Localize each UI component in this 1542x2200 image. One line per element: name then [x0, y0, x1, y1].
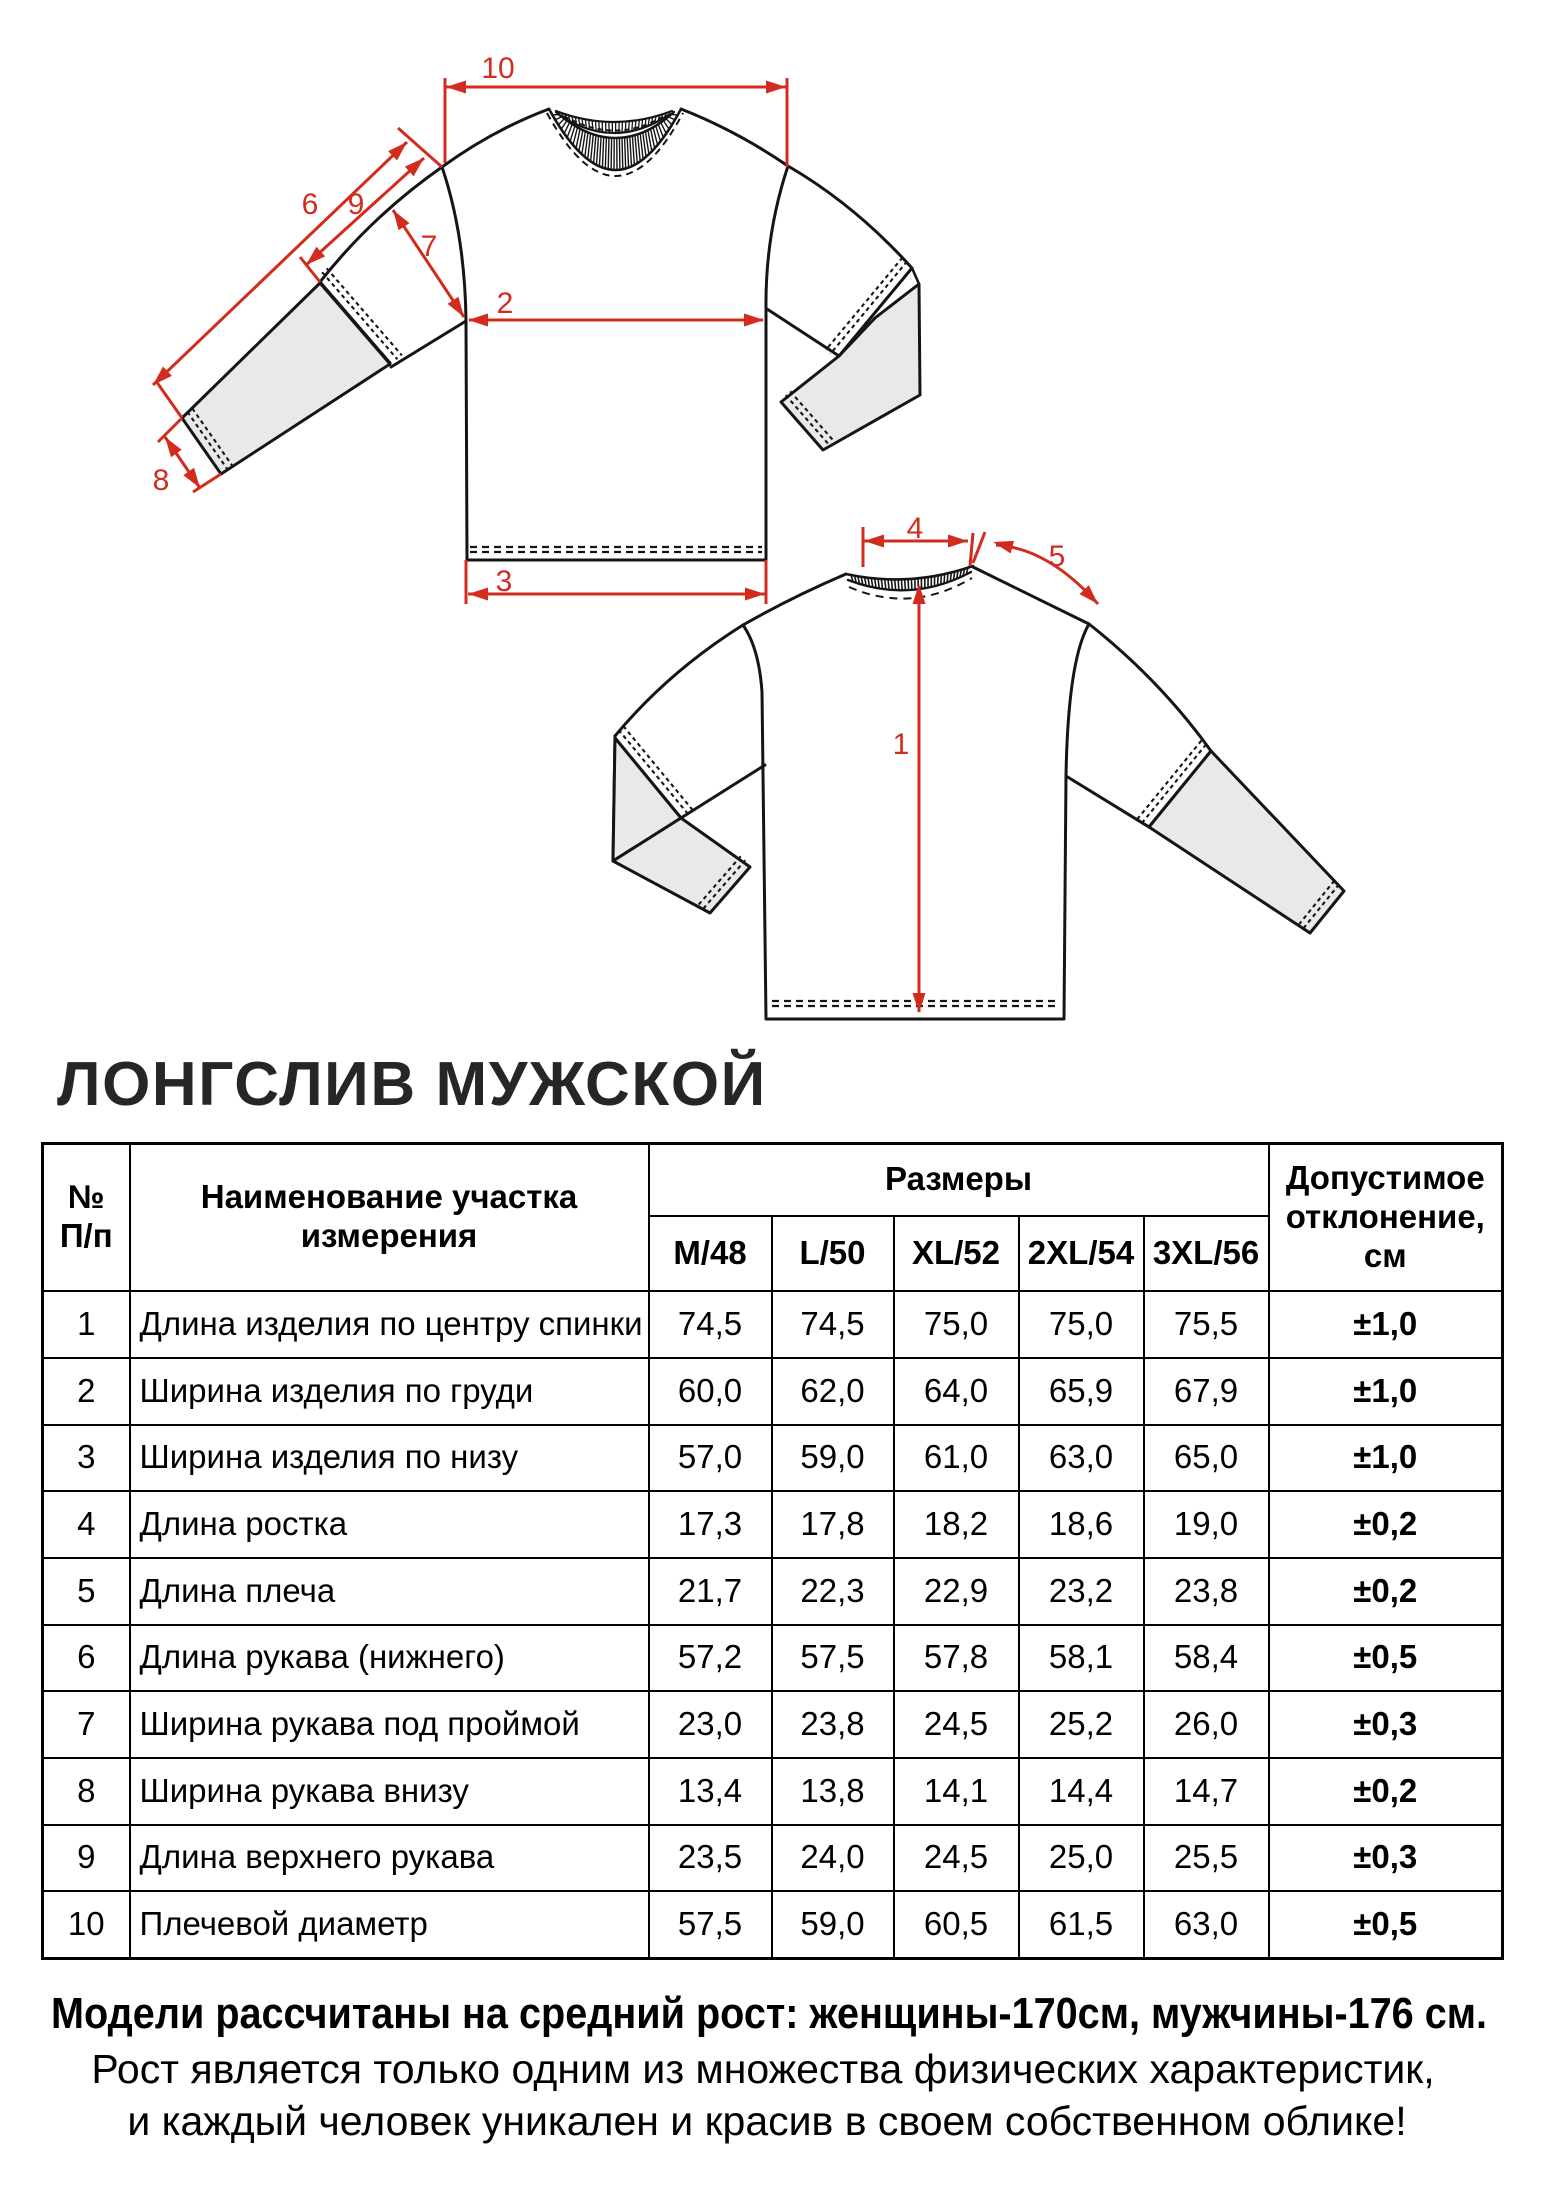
svg-text:2: 2	[497, 287, 514, 320]
svg-text:8: 8	[153, 464, 170, 497]
svg-text:7: 7	[421, 230, 438, 263]
svg-text:6: 6	[302, 188, 319, 221]
svg-text:3: 3	[496, 565, 513, 598]
svg-text:1: 1	[893, 728, 910, 761]
svg-text:10: 10	[481, 52, 514, 85]
svg-text:5: 5	[1049, 540, 1066, 573]
svg-text:9: 9	[348, 188, 365, 221]
svg-text:4: 4	[907, 512, 924, 545]
